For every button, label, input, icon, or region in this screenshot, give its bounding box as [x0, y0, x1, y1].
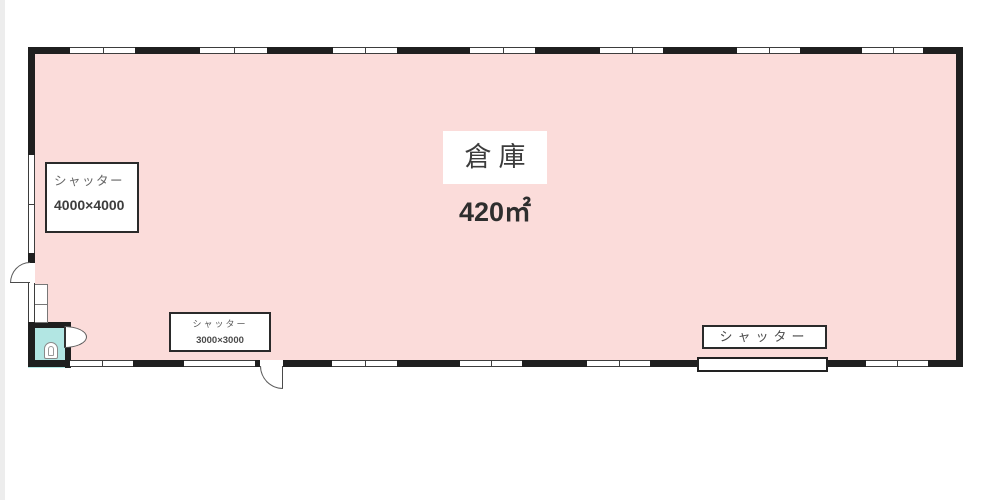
window-band [333, 47, 397, 54]
wall-segment [650, 360, 700, 367]
door-arc-bottom-entrance [260, 366, 283, 389]
wall-segment [535, 47, 600, 54]
shutter-left-size: 4000×4000 [54, 198, 137, 212]
floor-plan: シャッター 4000×4000 シャッター 3000×3000 シャッター 倉庫… [0, 0, 1000, 500]
window-band [600, 47, 663, 54]
window-band [862, 47, 923, 54]
wall-segment [522, 360, 587, 367]
shutter-label-right: シャッター [702, 325, 827, 349]
wall-segment [283, 360, 332, 367]
room-name: 倉庫 [443, 131, 547, 184]
wall-segment [663, 47, 737, 54]
window-band [587, 360, 650, 367]
shutter-label-left: シャッター 4000×4000 [45, 162, 139, 233]
shutter-panel-right [697, 357, 828, 372]
shutter-right-name: シャッター [704, 327, 825, 347]
window-band [70, 360, 133, 367]
shutter-bottom-name: シャッター [171, 320, 269, 329]
room-label-box: 倉庫 [443, 131, 547, 184]
wall-segment [397, 360, 460, 367]
toilet-icon [44, 342, 58, 359]
shutter-opening-bottom [184, 360, 255, 367]
wall-segment [800, 47, 862, 54]
shutter-left-name: シャッター [54, 175, 137, 188]
shutter-bottom-size: 3000×3000 [171, 336, 269, 346]
window-band [332, 360, 397, 367]
page-edge-strip [0, 0, 5, 500]
wall-segment [827, 360, 866, 367]
window-band [737, 47, 800, 54]
window-band [470, 47, 535, 54]
wall-segment [135, 47, 200, 54]
window-band [866, 360, 928, 367]
wall-segment [397, 47, 470, 54]
shutter-label-bottom: シャッター 3000×3000 [169, 312, 271, 352]
wall-segment [956, 47, 963, 367]
cabinet-divider [34, 304, 47, 305]
wall-segment [267, 47, 333, 54]
window-band [28, 283, 35, 322]
wall-segment [28, 322, 35, 367]
room-area: 420㎡ [425, 190, 565, 229]
door-arc-left-entrance [10, 262, 30, 283]
toilet-icon-bowl [48, 346, 54, 356]
shutter-opening-left [28, 155, 35, 253]
window-band [200, 47, 267, 54]
entrance-cabinet [33, 284, 48, 323]
window-band [460, 360, 522, 367]
window-band [70, 47, 135, 54]
wall-segment [133, 360, 184, 367]
wall-segment [28, 47, 35, 155]
